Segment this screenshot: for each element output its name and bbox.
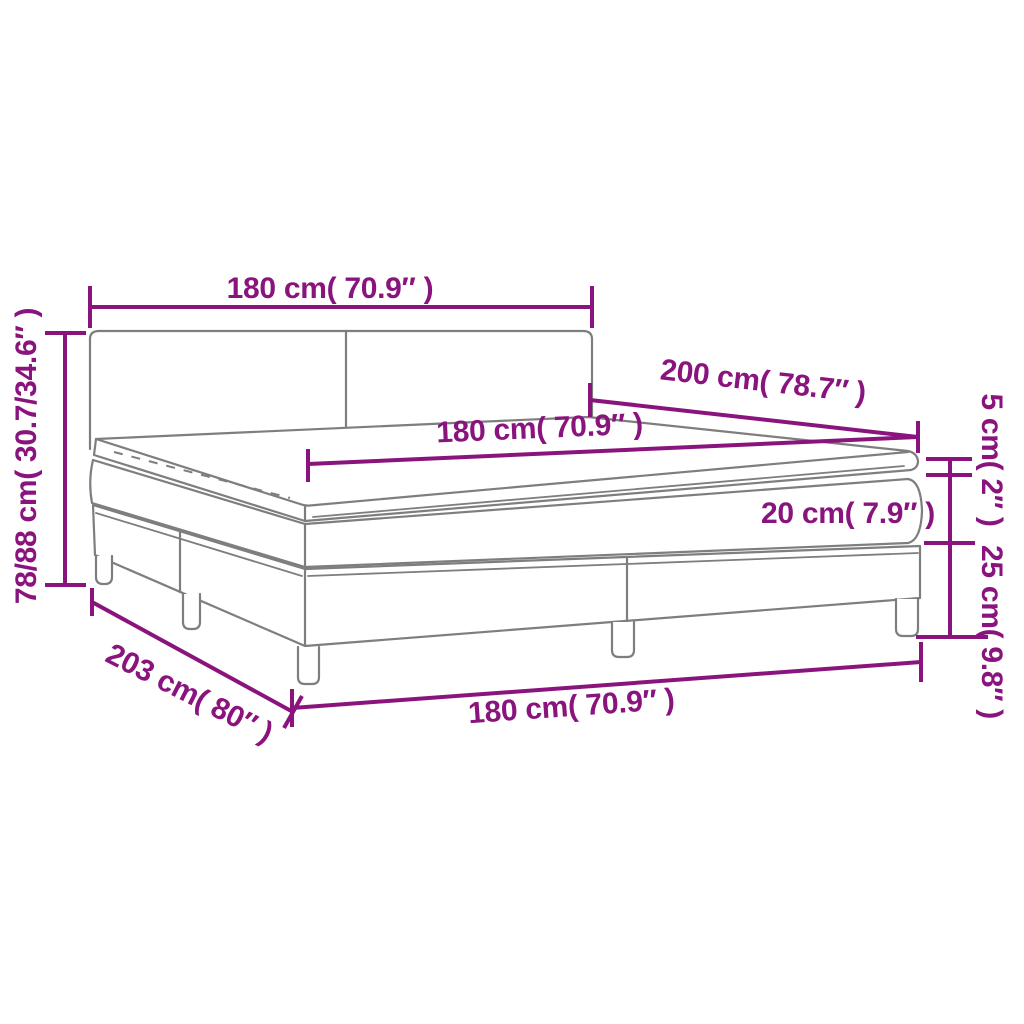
bed-leg-3	[298, 647, 319, 684]
mattress-height-label: 20 cm( 7.9″ )	[761, 497, 935, 530]
bed-dimension-diagram: 180 cm( 70.9″ ) 78/88 cm( 30.7/34.6″ ) 2…	[0, 0, 1024, 1024]
dim-frame-width: 180 cm( 70.9″ )	[292, 642, 921, 730]
bed-leg-4	[612, 622, 634, 657]
base-height-label: 25 cm( 9.8″ )	[975, 545, 1008, 719]
dim-bed-height: 78/88 cm( 30.7/34.6″ )	[10, 308, 86, 604]
bed-length-label: 200 cm( 78.7″ )	[659, 353, 868, 409]
topper-height-label: 5 cm( 2″ )	[975, 393, 1008, 526]
headboard-width-label: 180 cm( 70.9″ )	[227, 272, 434, 305]
frame-width-label: 180 cm( 70.9″ )	[467, 683, 675, 730]
bed-height-label: 78/88 cm( 30.7/34.6″ )	[10, 308, 43, 604]
bed-dimension-diagram-page: 180 cm( 70.9″ ) 78/88 cm( 30.7/34.6″ ) 2…	[0, 0, 1024, 1024]
bed-leg-2	[183, 594, 200, 629]
dim-headboard-width: 180 cm( 70.9″ )	[90, 272, 592, 328]
bed-leg-5	[896, 599, 918, 636]
bed-leg-1	[96, 556, 112, 584]
